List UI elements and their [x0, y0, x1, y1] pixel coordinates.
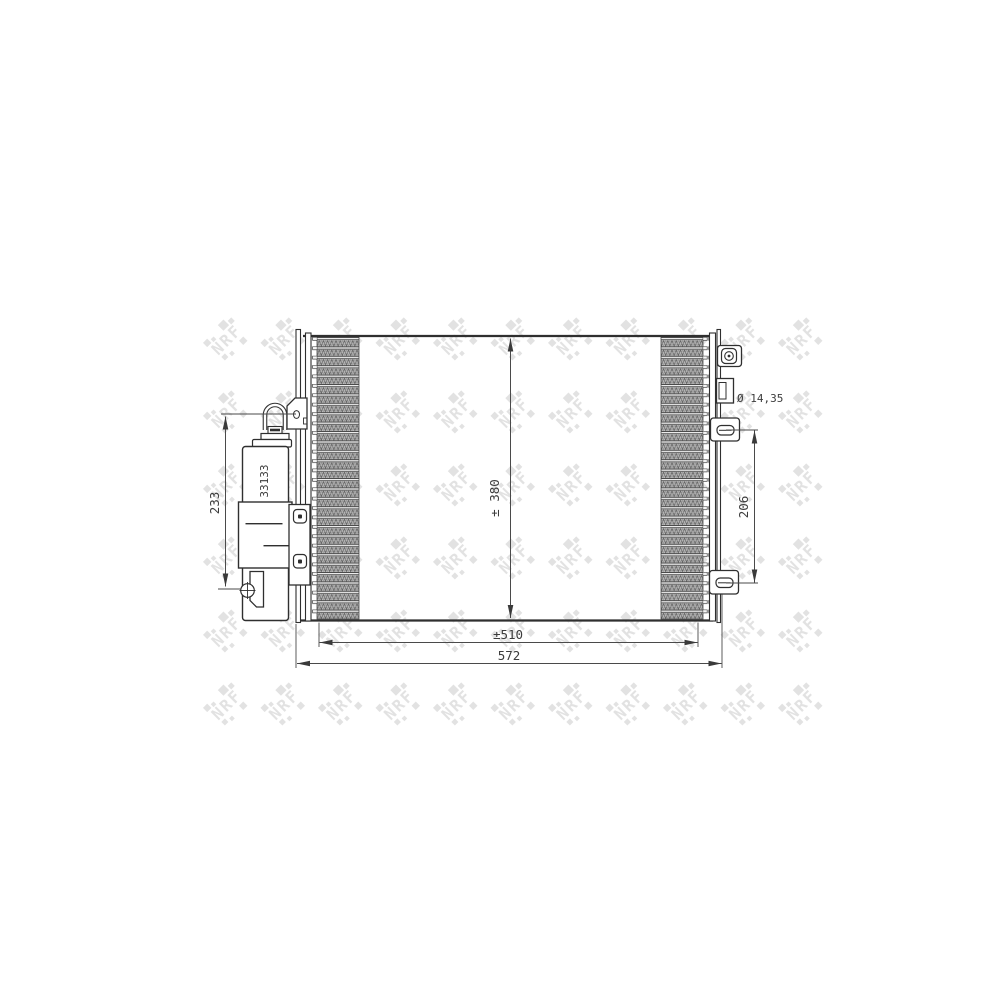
- drier-clamp-slit-1: [246, 523, 283, 524]
- tube-ends-left: [311, 337, 317, 619]
- watermark-tile: [374, 315, 423, 364]
- drawing-canvas: NRF: [0, 0, 1000, 1000]
- fin-block-left: [317, 337, 359, 619]
- watermark-tile: [719, 680, 768, 729]
- watermark-tile: [374, 461, 423, 510]
- dim-value-core-width: ±510: [493, 627, 523, 642]
- watermark-tile: [777, 607, 826, 656]
- technical-drawing: NRF: [0, 0, 1000, 1000]
- watermark-tile: [604, 388, 653, 437]
- watermark-tile: [662, 680, 711, 729]
- watermark-tile: [432, 607, 481, 656]
- mount-tab-bolt-center: [728, 355, 731, 358]
- drier-clamp: [239, 502, 293, 568]
- watermark-tile: [604, 315, 653, 364]
- drier-cap-step: [261, 434, 289, 440]
- dim-value-mount-span: 206: [736, 496, 751, 519]
- watermark-tile: [202, 388, 251, 437]
- watermark-tile: [604, 534, 653, 583]
- dim-value-total-width: 572: [498, 648, 521, 663]
- watermark-tile: [547, 534, 596, 583]
- watermark-tile: [604, 461, 653, 510]
- watermark-tile: [202, 680, 251, 729]
- watermark-tile: [432, 315, 481, 364]
- watermark-tile: [432, 534, 481, 583]
- watermark-tile: [547, 461, 596, 510]
- condenser-core: [296, 330, 721, 623]
- watermark-tile: [202, 315, 251, 364]
- watermark-tile: [432, 680, 481, 729]
- watermark-tile: [489, 388, 538, 437]
- watermark-tile: [547, 680, 596, 729]
- watermark-tile: [317, 680, 366, 729]
- drier-bolt-lower-center: [298, 560, 302, 564]
- drier-clamp-slit-2: [264, 545, 290, 546]
- watermark-tile: [259, 680, 308, 729]
- dim-value-core-height: ± 380: [487, 479, 502, 517]
- drier-bolt-upper-center: [298, 515, 302, 519]
- watermark-tile: [777, 680, 826, 729]
- watermark-tile: [374, 680, 423, 729]
- watermark-tile: [777, 534, 826, 583]
- tube-ends-right: [703, 337, 709, 619]
- watermark-tile: [374, 388, 423, 437]
- watermark-tile: [374, 607, 423, 656]
- watermark-tile: [547, 315, 596, 364]
- watermark-tile: [604, 607, 653, 656]
- dim-value-drier-height: 233: [207, 492, 222, 515]
- watermark-tile: [719, 607, 768, 656]
- watermark-tile: [547, 607, 596, 656]
- watermark-tile: [777, 461, 826, 510]
- watermark-tile: [374, 534, 423, 583]
- watermark-tile: [604, 680, 653, 729]
- watermark-tile: [432, 388, 481, 437]
- watermark-tile: [547, 388, 596, 437]
- part-number-label: 33133: [258, 464, 271, 497]
- label-pin-diameter: Ø 14,35: [737, 392, 783, 405]
- watermark-tile: [777, 388, 826, 437]
- fin-block-right: [661, 337, 703, 619]
- watermark-tile: [489, 534, 538, 583]
- watermark-tile: [259, 315, 308, 364]
- watermark-tile: [777, 315, 826, 364]
- watermark-tile: [489, 315, 538, 364]
- watermark-tile: [432, 461, 481, 510]
- watermark-tile: [489, 680, 538, 729]
